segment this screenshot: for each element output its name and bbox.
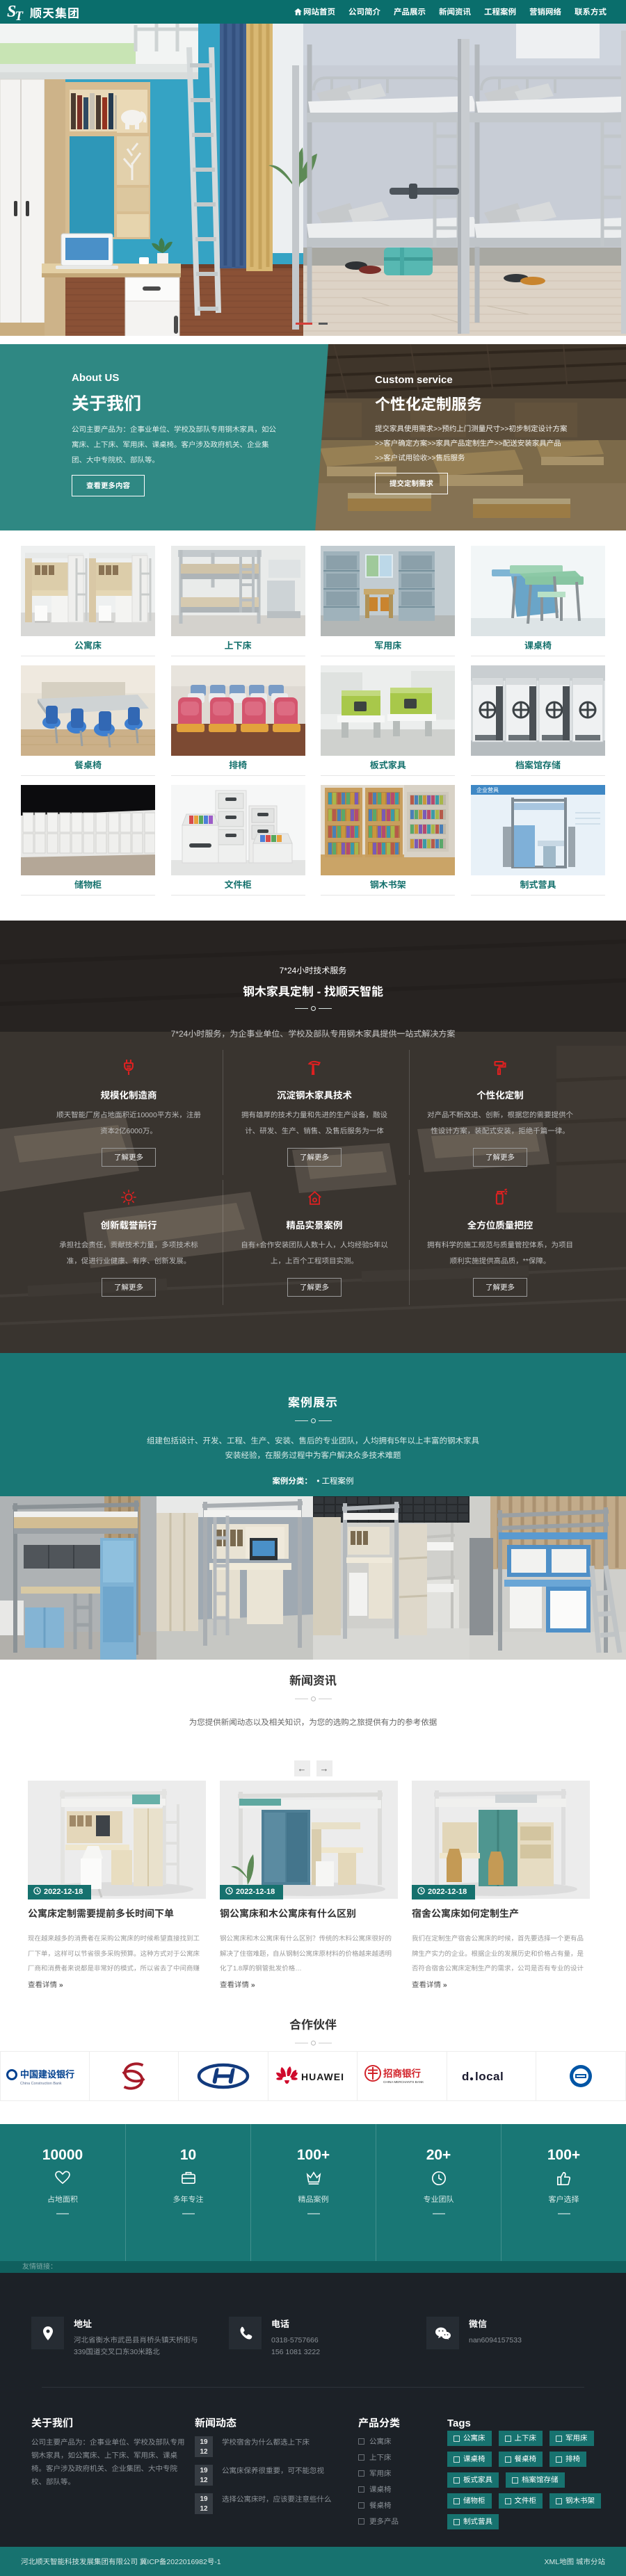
svg-text:中国建设银行: 中国建设银行 (20, 2069, 74, 2080)
svg-text:d: d (462, 2070, 469, 2083)
svg-text:企业营具: 企业营具 (476, 786, 499, 793)
svg-text:招商银行: 招商银行 (383, 2068, 421, 2079)
svg-text:CHINA MERCHANTS BANK: CHINA MERCHANTS BANK (383, 2080, 424, 2084)
svg-text:China Construction Bank: China Construction Bank (20, 2082, 62, 2086)
svg-text:local: local (475, 2070, 504, 2083)
svg-text:HUAWEI: HUAWEI (301, 2071, 344, 2082)
